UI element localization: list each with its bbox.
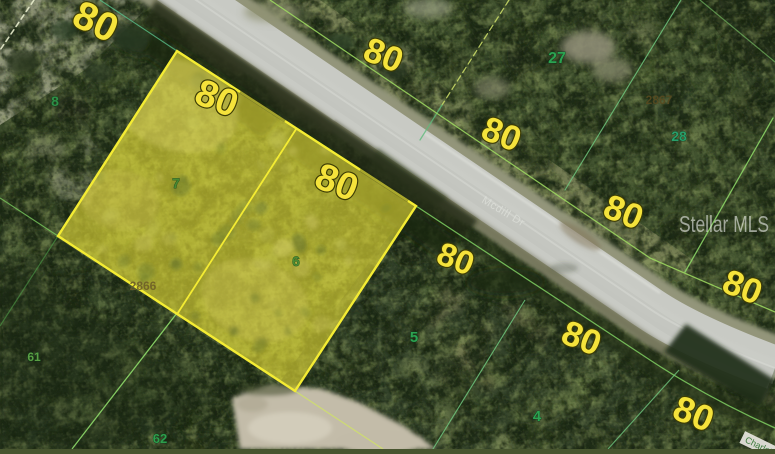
svg-text:7: 7 — [172, 175, 180, 191]
svg-text:2866: 2866 — [130, 279, 157, 293]
svg-text:8: 8 — [51, 93, 59, 109]
svg-text:28: 28 — [671, 128, 687, 144]
svg-text:4: 4 — [533, 408, 542, 425]
svg-text:5: 5 — [410, 329, 418, 346]
svg-text:2867: 2867 — [646, 93, 673, 107]
svg-text:6: 6 — [292, 253, 300, 269]
svg-text:27: 27 — [548, 50, 566, 67]
svg-text:61: 61 — [27, 350, 41, 364]
svg-text:Stellar MLS: Stellar MLS — [679, 211, 769, 237]
svg-text:62: 62 — [153, 431, 167, 446]
